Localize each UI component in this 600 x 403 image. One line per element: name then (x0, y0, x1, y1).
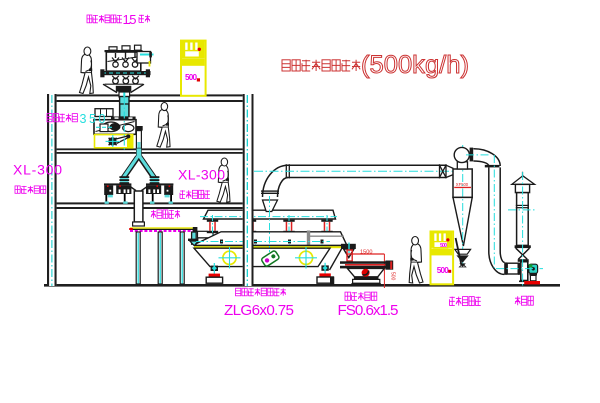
svg-text:XF500: XF500 (456, 182, 469, 187)
svg-text:XL-300: XL-300 (178, 167, 225, 183)
svg-text:500: 500 (390, 272, 396, 281)
svg-text:500: 500 (440, 243, 447, 249)
svg-text:350: 350 (80, 112, 106, 126)
svg-text:1500: 1500 (360, 250, 372, 256)
svg-text:ZLG6x0.75: ZLG6x0.75 (224, 302, 294, 319)
svg-text:500: 500 (437, 266, 449, 275)
svg-text:XL-300: XL-300 (13, 162, 62, 178)
svg-text:(500kg/h): (500kg/h) (361, 51, 469, 79)
svg-text:500: 500 (185, 73, 197, 82)
svg-text:1.5: 1.5 (123, 12, 137, 27)
svg-text:FS0.6x1.5: FS0.6x1.5 (338, 302, 399, 319)
